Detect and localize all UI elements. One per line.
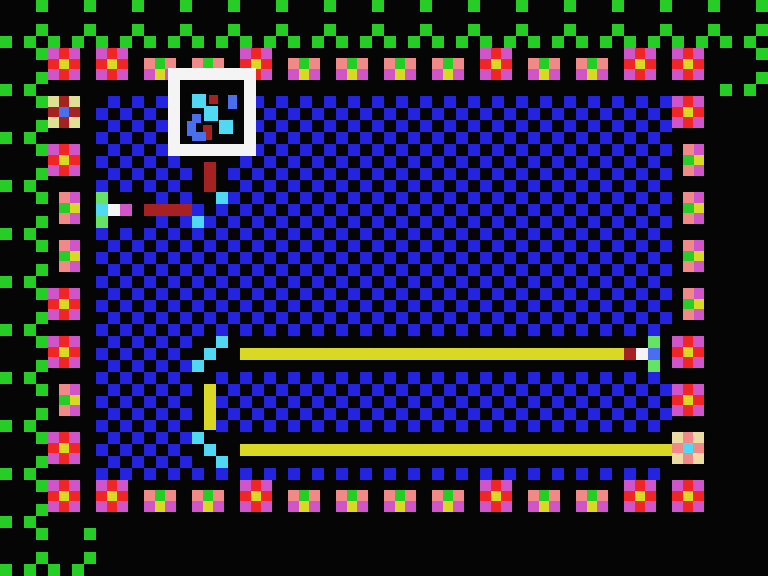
vine-dot — [36, 552, 48, 564]
border-tile-bud — [432, 58, 464, 80]
tile-pixel — [683, 117, 694, 128]
tile-pixel — [683, 59, 694, 70]
tile-pixel — [693, 48, 704, 59]
worm-body-vertical — [204, 162, 216, 192]
border-tile-bud — [288, 490, 320, 512]
vine-dot — [36, 168, 48, 180]
vine-dot — [480, 36, 492, 48]
vine-dot — [36, 408, 48, 420]
tile-pixel — [261, 48, 272, 59]
tile-pixel — [694, 213, 705, 224]
tile-pixel — [405, 501, 416, 512]
tile-pixel — [240, 480, 251, 491]
vine-dot — [744, 36, 756, 48]
vine-dot — [0, 564, 12, 576]
tile-pixel — [693, 501, 704, 512]
tile-pixel — [672, 395, 683, 406]
tile-pixel — [69, 144, 80, 155]
tile-pixel — [453, 501, 464, 512]
tile-pixel — [155, 490, 166, 501]
tile-pixel — [299, 69, 310, 80]
vine-dot — [24, 36, 36, 48]
vine-dot — [24, 228, 36, 240]
tile-pixel — [48, 491, 59, 502]
tile-pixel — [59, 384, 70, 395]
tile-pixel — [70, 405, 81, 416]
tile-pixel — [107, 480, 118, 491]
tile-pixel — [59, 144, 70, 155]
tile-pixel — [203, 501, 214, 512]
tile-pixel — [694, 144, 705, 155]
tile-pixel — [48, 165, 59, 176]
tile-pixel — [59, 357, 70, 368]
vine-dot — [24, 276, 36, 288]
tile-pixel — [69, 299, 80, 310]
tile-pixel — [672, 501, 683, 512]
tile-pixel — [624, 59, 635, 70]
vine-dot — [36, 48, 48, 60]
tile-pixel — [48, 480, 59, 491]
tile-pixel — [683, 192, 694, 203]
tile-pixel — [693, 347, 704, 358]
tile-pixel — [48, 48, 59, 59]
tile-pixel — [144, 490, 155, 501]
tile-pixel — [69, 107, 80, 118]
tile-pixel — [69, 347, 80, 358]
vine-dot — [36, 240, 48, 252]
cyan-step — [216, 336, 228, 348]
tile-pixel — [683, 336, 694, 347]
tile-pixel — [288, 69, 299, 80]
tile-pixel — [69, 443, 80, 454]
tile-pixel — [587, 490, 598, 501]
tile-pixel — [59, 501, 70, 512]
vine-dot — [0, 276, 12, 288]
tile-pixel — [59, 491, 70, 502]
tile-pixel — [587, 58, 598, 69]
tile-pixel — [672, 443, 683, 454]
vine-dot — [0, 36, 12, 48]
tile-pixel — [69, 453, 80, 464]
game-screen[interactable] — [0, 0, 768, 576]
tile-pixel — [683, 395, 694, 406]
border-tile-bud — [528, 58, 560, 80]
tile-pixel — [309, 501, 320, 512]
border-tile-flower — [48, 48, 80, 80]
tile-pixel — [59, 336, 70, 347]
tile-pixel — [693, 395, 704, 406]
tile-pixel — [69, 309, 80, 320]
tile-pixel — [693, 96, 704, 107]
yellow-bar-2 — [240, 444, 672, 456]
tile-pixel — [694, 251, 705, 262]
vine-dot — [36, 216, 48, 228]
tile-pixel — [683, 48, 694, 59]
tile-pixel — [117, 501, 128, 512]
vine-dot — [0, 180, 12, 192]
tile-pixel — [693, 480, 704, 491]
tile-pixel — [672, 117, 683, 128]
tile-pixel — [240, 501, 251, 512]
tile-pixel — [48, 155, 59, 166]
bar1-head-leaf-top — [648, 336, 660, 348]
vine-dot — [468, 24, 480, 36]
cyan-step — [204, 444, 216, 456]
vine-dot — [36, 0, 48, 12]
tile-pixel — [693, 336, 704, 347]
item-box-creature-icon — [228, 95, 237, 109]
tile-pixel — [395, 58, 406, 69]
tile-pixel — [117, 59, 128, 70]
vine-dot — [84, 552, 96, 564]
vine-dot — [276, 0, 288, 12]
tile-pixel — [432, 69, 443, 80]
vine-dot — [36, 312, 48, 324]
tile-pixel — [59, 405, 70, 416]
tile-pixel — [694, 203, 705, 214]
tile-pixel — [59, 165, 70, 176]
tile-pixel — [69, 288, 80, 299]
vine-dot — [36, 192, 48, 204]
tile-pixel — [645, 48, 656, 59]
vine-dot — [48, 36, 60, 48]
tile-pixel — [683, 443, 694, 454]
vine-dot — [564, 24, 576, 36]
tile-pixel — [384, 490, 395, 501]
vine-dot — [0, 468, 12, 480]
tile-pixel — [693, 453, 704, 464]
tile-pixel — [347, 501, 358, 512]
border-tile-flower — [48, 288, 80, 320]
tile-pixel — [587, 69, 598, 80]
vine-dot — [36, 504, 48, 516]
border-tile-bud — [384, 490, 416, 512]
bar1-head-white — [636, 348, 648, 360]
tile-pixel — [107, 69, 118, 80]
border-tile-flower — [624, 48, 656, 80]
tile-pixel — [59, 107, 70, 118]
tile-pixel — [693, 69, 704, 80]
tile-pixel — [288, 490, 299, 501]
vine-dot — [180, 24, 192, 36]
tile-pixel — [694, 240, 705, 251]
vine-dot — [228, 0, 240, 12]
border-tile-flower — [672, 480, 704, 512]
tile-pixel — [683, 491, 694, 502]
tile-pixel — [59, 155, 70, 166]
tile-pixel — [48, 107, 59, 118]
tile-pixel — [683, 251, 694, 262]
item-box-creature-icon — [219, 120, 233, 134]
border-tile-bud-side — [683, 192, 704, 224]
tile-pixel — [48, 357, 59, 368]
vine-dot — [660, 0, 672, 12]
tile-pixel — [261, 480, 272, 491]
tile-pixel — [59, 213, 70, 224]
tile-pixel — [117, 69, 128, 80]
vine-dot — [360, 36, 372, 48]
tile-pixel — [693, 405, 704, 416]
border-tile-bud — [384, 58, 416, 80]
vine-dot — [276, 24, 288, 36]
tile-pixel — [576, 490, 587, 501]
tile-pixel — [624, 69, 635, 80]
tile-pixel — [347, 58, 358, 69]
border-tile-bud-side — [59, 384, 80, 416]
cyan-step — [204, 348, 216, 360]
tile-pixel — [213, 490, 224, 501]
tile-pixel — [693, 357, 704, 368]
border-tile-bud — [288, 58, 320, 80]
tile-pixel — [69, 59, 80, 70]
border-tile-flower — [48, 336, 80, 368]
item-box-creature-icon — [209, 95, 218, 104]
border-tile-flower — [672, 336, 704, 368]
vine-dot — [516, 0, 528, 12]
tile-pixel — [491, 48, 502, 59]
worm-head-white — [108, 204, 120, 216]
tile-pixel — [288, 501, 299, 512]
tile-pixel — [48, 453, 59, 464]
vine-dot — [648, 36, 660, 48]
vine-dot — [312, 36, 324, 48]
tile-pixel — [261, 491, 272, 502]
tile-pixel — [672, 347, 683, 358]
vine-dot — [744, 84, 756, 96]
tile-pixel — [672, 69, 683, 80]
worm-body-horizontal — [144, 204, 192, 216]
tile-pixel — [69, 69, 80, 80]
tile-pixel — [672, 107, 683, 118]
tile-pixel — [107, 59, 118, 70]
vine-dot — [624, 36, 636, 48]
vine-dot — [228, 24, 240, 36]
tile-pixel — [597, 58, 608, 69]
tile-pixel — [672, 480, 683, 491]
tile-pixel — [155, 501, 166, 512]
tile-pixel — [96, 48, 107, 59]
vine-dot — [72, 36, 84, 48]
vine-dot — [84, 528, 96, 540]
tile-pixel — [624, 501, 635, 512]
tile-pixel — [683, 432, 694, 443]
tile-pixel — [59, 432, 70, 443]
tile-pixel — [336, 58, 347, 69]
yellow-bar-1 — [240, 348, 624, 360]
tile-pixel — [597, 501, 608, 512]
tile-pixel — [309, 58, 320, 69]
tile-pixel — [672, 59, 683, 70]
tile-pixel — [501, 491, 512, 502]
tile-pixel — [491, 59, 502, 70]
tile-pixel — [501, 59, 512, 70]
tile-pixel — [70, 213, 81, 224]
tile-pixel — [480, 48, 491, 59]
border-tile-flower — [480, 480, 512, 512]
tile-pixel — [501, 480, 512, 491]
tile-pixel — [192, 501, 203, 512]
vine-dot — [0, 132, 12, 144]
tile-pixel — [165, 490, 176, 501]
tile-pixel — [672, 357, 683, 368]
vine-dot — [96, 36, 108, 48]
tile-pixel — [491, 491, 502, 502]
cyan-step — [216, 456, 228, 468]
tile-pixel — [384, 501, 395, 512]
border-tile-flower — [672, 384, 704, 416]
tile-pixel — [347, 69, 358, 80]
tile-pixel — [693, 384, 704, 395]
tile-pixel — [683, 155, 694, 166]
border-tile-flower — [96, 48, 128, 80]
vine-dot — [600, 36, 612, 48]
vine-dot — [456, 36, 468, 48]
tile-pixel — [683, 213, 694, 224]
vine-dot — [420, 24, 432, 36]
tile-pixel — [213, 501, 224, 512]
tile-pixel — [645, 501, 656, 512]
tile-pixel — [443, 501, 454, 512]
tile-pixel — [59, 299, 70, 310]
vine-dot — [36, 360, 48, 372]
tile-pixel — [59, 347, 70, 358]
tile-pixel — [251, 501, 262, 512]
tile-pixel — [117, 48, 128, 59]
vine-dot — [192, 36, 204, 48]
vine-dot — [24, 84, 36, 96]
tile-pixel — [693, 107, 704, 118]
tile-pixel — [48, 299, 59, 310]
tile-pixel — [309, 69, 320, 80]
tile-pixel — [59, 288, 70, 299]
tile-pixel — [539, 490, 550, 501]
yellow-bar-vertical — [204, 384, 216, 430]
tile-pixel — [59, 96, 70, 107]
vine-dot — [420, 0, 432, 12]
border-tile-bud-side — [683, 144, 704, 176]
vine-dot — [516, 24, 528, 36]
tile-pixel — [336, 69, 347, 80]
tile-pixel — [155, 69, 166, 80]
vine-dot — [756, 72, 768, 84]
tile-pixel — [683, 309, 694, 320]
tile-pixel — [694, 299, 705, 310]
tile-pixel — [144, 501, 155, 512]
vine-dot — [216, 36, 228, 48]
tile-pixel — [48, 443, 59, 454]
vine-dot — [36, 96, 48, 108]
item-box — [168, 68, 256, 156]
tile-pixel — [528, 69, 539, 80]
worm-head-cyan — [96, 204, 108, 216]
tile-pixel — [491, 480, 502, 491]
vine-dot — [24, 468, 36, 480]
border-tile-flower — [48, 432, 80, 464]
tile-pixel — [69, 96, 80, 107]
tile-pixel — [70, 395, 81, 406]
tile-pixel — [69, 155, 80, 166]
item-box-creature-icon — [192, 132, 206, 141]
vine-dot — [612, 24, 624, 36]
tile-pixel — [288, 58, 299, 69]
vine-dot — [528, 36, 540, 48]
tile-pixel — [192, 490, 203, 501]
tile-pixel — [48, 309, 59, 320]
tile-pixel — [96, 480, 107, 491]
tile-pixel — [336, 490, 347, 501]
border-tile-flower — [624, 480, 656, 512]
tile-pixel — [576, 58, 587, 69]
tile-pixel — [347, 490, 358, 501]
tile-pixel — [683, 240, 694, 251]
border-tile-bud — [432, 490, 464, 512]
tile-pixel — [624, 491, 635, 502]
tile-pixel — [48, 59, 59, 70]
vine-dot — [240, 36, 252, 48]
border-tile-flower — [48, 144, 80, 176]
tile-pixel — [395, 490, 406, 501]
border-tile-bud — [192, 490, 224, 512]
tile-pixel — [70, 192, 81, 203]
vine-dot — [24, 180, 36, 192]
border-tile-bud-side — [683, 240, 704, 272]
tile-pixel — [624, 48, 635, 59]
tile-pixel — [549, 58, 560, 69]
tile-pixel — [69, 165, 80, 176]
tile-pixel — [645, 69, 656, 80]
vine-dot — [432, 36, 444, 48]
tile-pixel — [453, 69, 464, 80]
tile-pixel — [395, 501, 406, 512]
tile-pixel — [432, 490, 443, 501]
tile-pixel — [683, 405, 694, 416]
vine-dot — [36, 120, 48, 132]
vine-dot — [756, 24, 768, 36]
cyan-step — [216, 192, 228, 204]
border-tile-flower — [672, 48, 704, 80]
tile-pixel — [453, 58, 464, 69]
tile-pixel — [48, 432, 59, 443]
tile-pixel — [59, 443, 70, 454]
vine-dot — [132, 0, 144, 12]
tile-pixel — [683, 501, 694, 512]
vine-dot — [612, 0, 624, 12]
tile-pixel — [694, 192, 705, 203]
tile-pixel — [539, 58, 550, 69]
border-tile-bud-side — [59, 240, 80, 272]
tile-pixel — [59, 48, 70, 59]
vine-dot — [696, 36, 708, 48]
tile-pixel — [576, 501, 587, 512]
tile-pixel — [480, 480, 491, 491]
tile-pixel — [432, 58, 443, 69]
tile-pixel — [117, 480, 128, 491]
worm-head-leaf-bottom — [96, 216, 108, 228]
vine-dot — [0, 516, 12, 528]
tile-pixel — [672, 384, 683, 395]
tile-pixel — [117, 491, 128, 502]
tile-pixel — [59, 480, 70, 491]
vine-dot — [552, 36, 564, 48]
tile-pixel — [59, 117, 70, 128]
tile-pixel — [48, 347, 59, 358]
vine-dot — [36, 528, 48, 540]
vine-dot — [372, 24, 384, 36]
tile-pixel — [693, 491, 704, 502]
tile-pixel — [357, 58, 368, 69]
tile-pixel — [70, 261, 81, 272]
tile-pixel — [693, 59, 704, 70]
